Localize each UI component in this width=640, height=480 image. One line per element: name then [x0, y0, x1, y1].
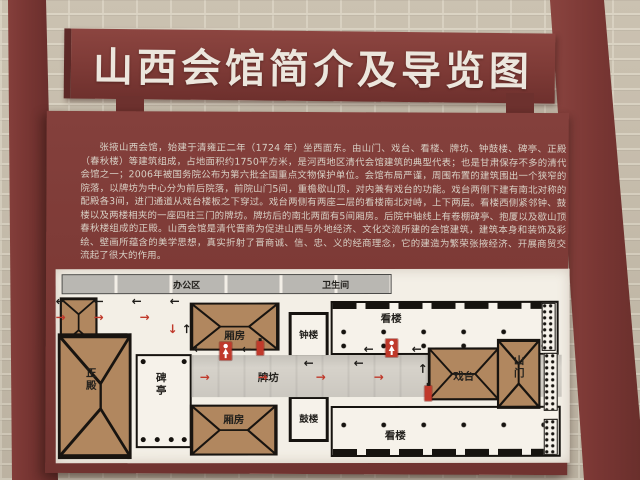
route-arrow-right: → — [140, 311, 150, 323]
drum-tower-label: 鼓楼 — [299, 411, 318, 425]
column-dot — [182, 437, 187, 442]
office-strip: 办公区 卫生间 — [62, 274, 392, 294]
column-dot — [169, 437, 174, 442]
route-arrow-left: ← — [364, 343, 374, 355]
board-title: 山西会馆简介及导览图 — [93, 35, 534, 98]
intro-paragraph: 张掖山西会馆，始建于清雍正二年（1724 年）坐西面东。由山门、戏台、看楼、牌坊… — [80, 141, 567, 265]
steps-hatch — [544, 419, 558, 455]
steps-hatch — [542, 303, 556, 351]
stele-pavilion-label: 碑亭 — [154, 372, 169, 397]
route-arrow-right: → — [94, 311, 104, 323]
stage-label: 戏台 — [453, 369, 474, 384]
gallery-south-label: 看楼 — [385, 428, 406, 443]
column-dot — [141, 359, 146, 364]
route-arrow-right: → — [56, 311, 66, 323]
route-arrow-up: ↑ — [418, 363, 428, 375]
route-arrow-left: ← — [304, 357, 314, 369]
route-arrow-left: ← — [412, 343, 422, 355]
route-arrow-left: ← — [354, 357, 364, 369]
route-arrow-left: ← — [242, 343, 252, 355]
route-arrow-right: → — [200, 371, 210, 383]
restroom-sign-icon — [220, 342, 232, 360]
map-building-main-hall: 正殿 — [58, 333, 132, 459]
route-arrow-right: → — [374, 371, 384, 383]
main-board: 张掖山西会馆，始建于清雍正二年（1724 年）坐西面东。由山门、戏台、看楼、牌坊… — [45, 111, 569, 475]
map-building-bell-tower: 钟楼 — [289, 312, 329, 358]
wall-crenellation — [333, 302, 557, 309]
route-arrow-left: ← — [194, 343, 204, 355]
gate-label: 山门 — [512, 355, 527, 380]
route-arrow-left: ← — [132, 295, 142, 307]
wing-north-label: 厢房 — [224, 328, 245, 343]
title-board: 山西会馆简介及导览图 — [64, 28, 556, 103]
route-arrow-left: ← — [56, 295, 66, 307]
office-label: 办公区 — [147, 278, 227, 291]
map-building-stage: 戏台 — [428, 347, 500, 401]
main-hall-label: 正殿 — [84, 367, 99, 392]
hip-roof-icon — [58, 333, 132, 459]
column-dot — [141, 437, 146, 442]
route-arrow-up: ↑ — [182, 323, 192, 335]
steps-hatch — [544, 353, 558, 411]
route-arrow-right: → — [258, 371, 268, 383]
restroom-sign-icon — [386, 339, 398, 357]
map-building-stele-pavilion: 碑亭 — [136, 354, 192, 448]
bell-tower-label: 钟楼 — [299, 327, 318, 341]
map-panel: 办公区 卫生间 正殿 — [56, 269, 570, 463]
column-dot — [155, 437, 160, 442]
gallery-north-label: 看楼 — [381, 311, 402, 326]
column-dot-row — [341, 422, 551, 428]
map-building-wing-south: 厢房 — [190, 404, 278, 456]
wing-south-label: 厢房 — [223, 412, 244, 427]
map-building-gate: 山门 — [497, 339, 541, 409]
column-dot-row — [341, 329, 549, 335]
route-arrow-left: ← — [94, 295, 104, 307]
route-arrow-left: ← — [170, 295, 180, 307]
fire-extinguisher-icon — [425, 386, 432, 401]
column-dot — [182, 359, 187, 364]
restroom-label: 卫生间 — [296, 278, 376, 291]
route-arrow-right: → — [316, 371, 326, 383]
photo-of-guide-board: 山西会馆简介及导览图 张掖山西会馆，始建于清雍正二年（1724 年）坐西面东。由… — [0, 0, 640, 480]
wall-crenellation — [333, 449, 559, 456]
map-building-gallery-south: 看楼 — [331, 406, 561, 457]
route-arrow-down: ↓ — [168, 323, 178, 335]
map-building-drum-tower: 鼓楼 — [289, 396, 329, 442]
fire-extinguisher-icon — [257, 341, 264, 355]
